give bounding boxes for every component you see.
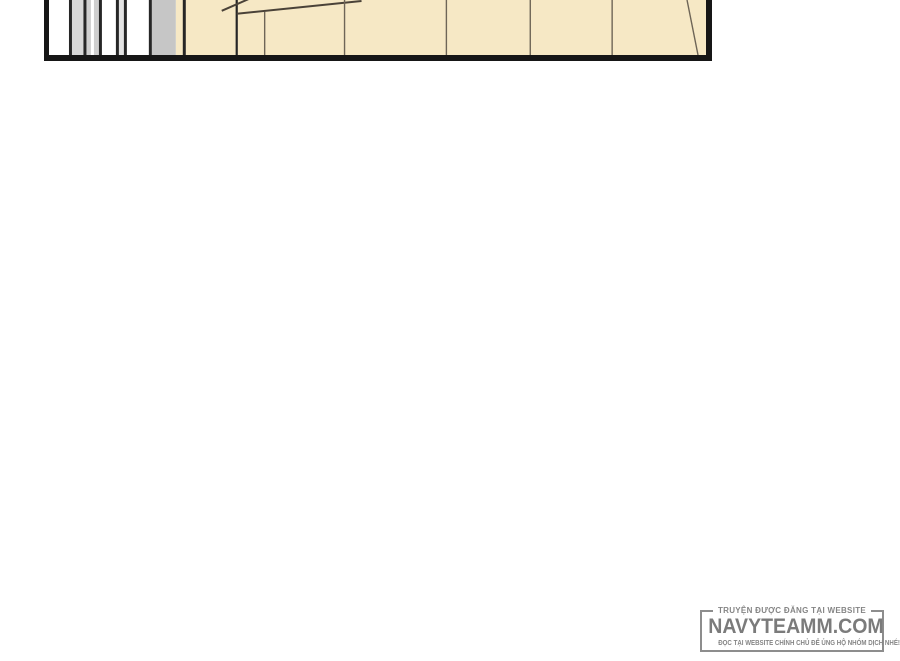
- panel-artwork: [49, 0, 706, 55]
- site-watermark: TRUYỆN ĐƯỢC ĐĂNG TẠI WEBSITE NAVYTEAMM.C…: [700, 610, 884, 652]
- watermark-bottom-label: ĐỌC TẠI WEBSITE CHÍNH CHỦ ĐỂ ỦNG HỘ NHÓM…: [718, 638, 866, 647]
- webtoon-page: TRUYỆN ĐƯỢC ĐĂNG TẠI WEBSITE NAVYTEAMM.C…: [0, 0, 900, 661]
- watermark-site-name: NAVYTEAMM.COM: [708, 617, 875, 637]
- comic-panel: [44, 0, 712, 61]
